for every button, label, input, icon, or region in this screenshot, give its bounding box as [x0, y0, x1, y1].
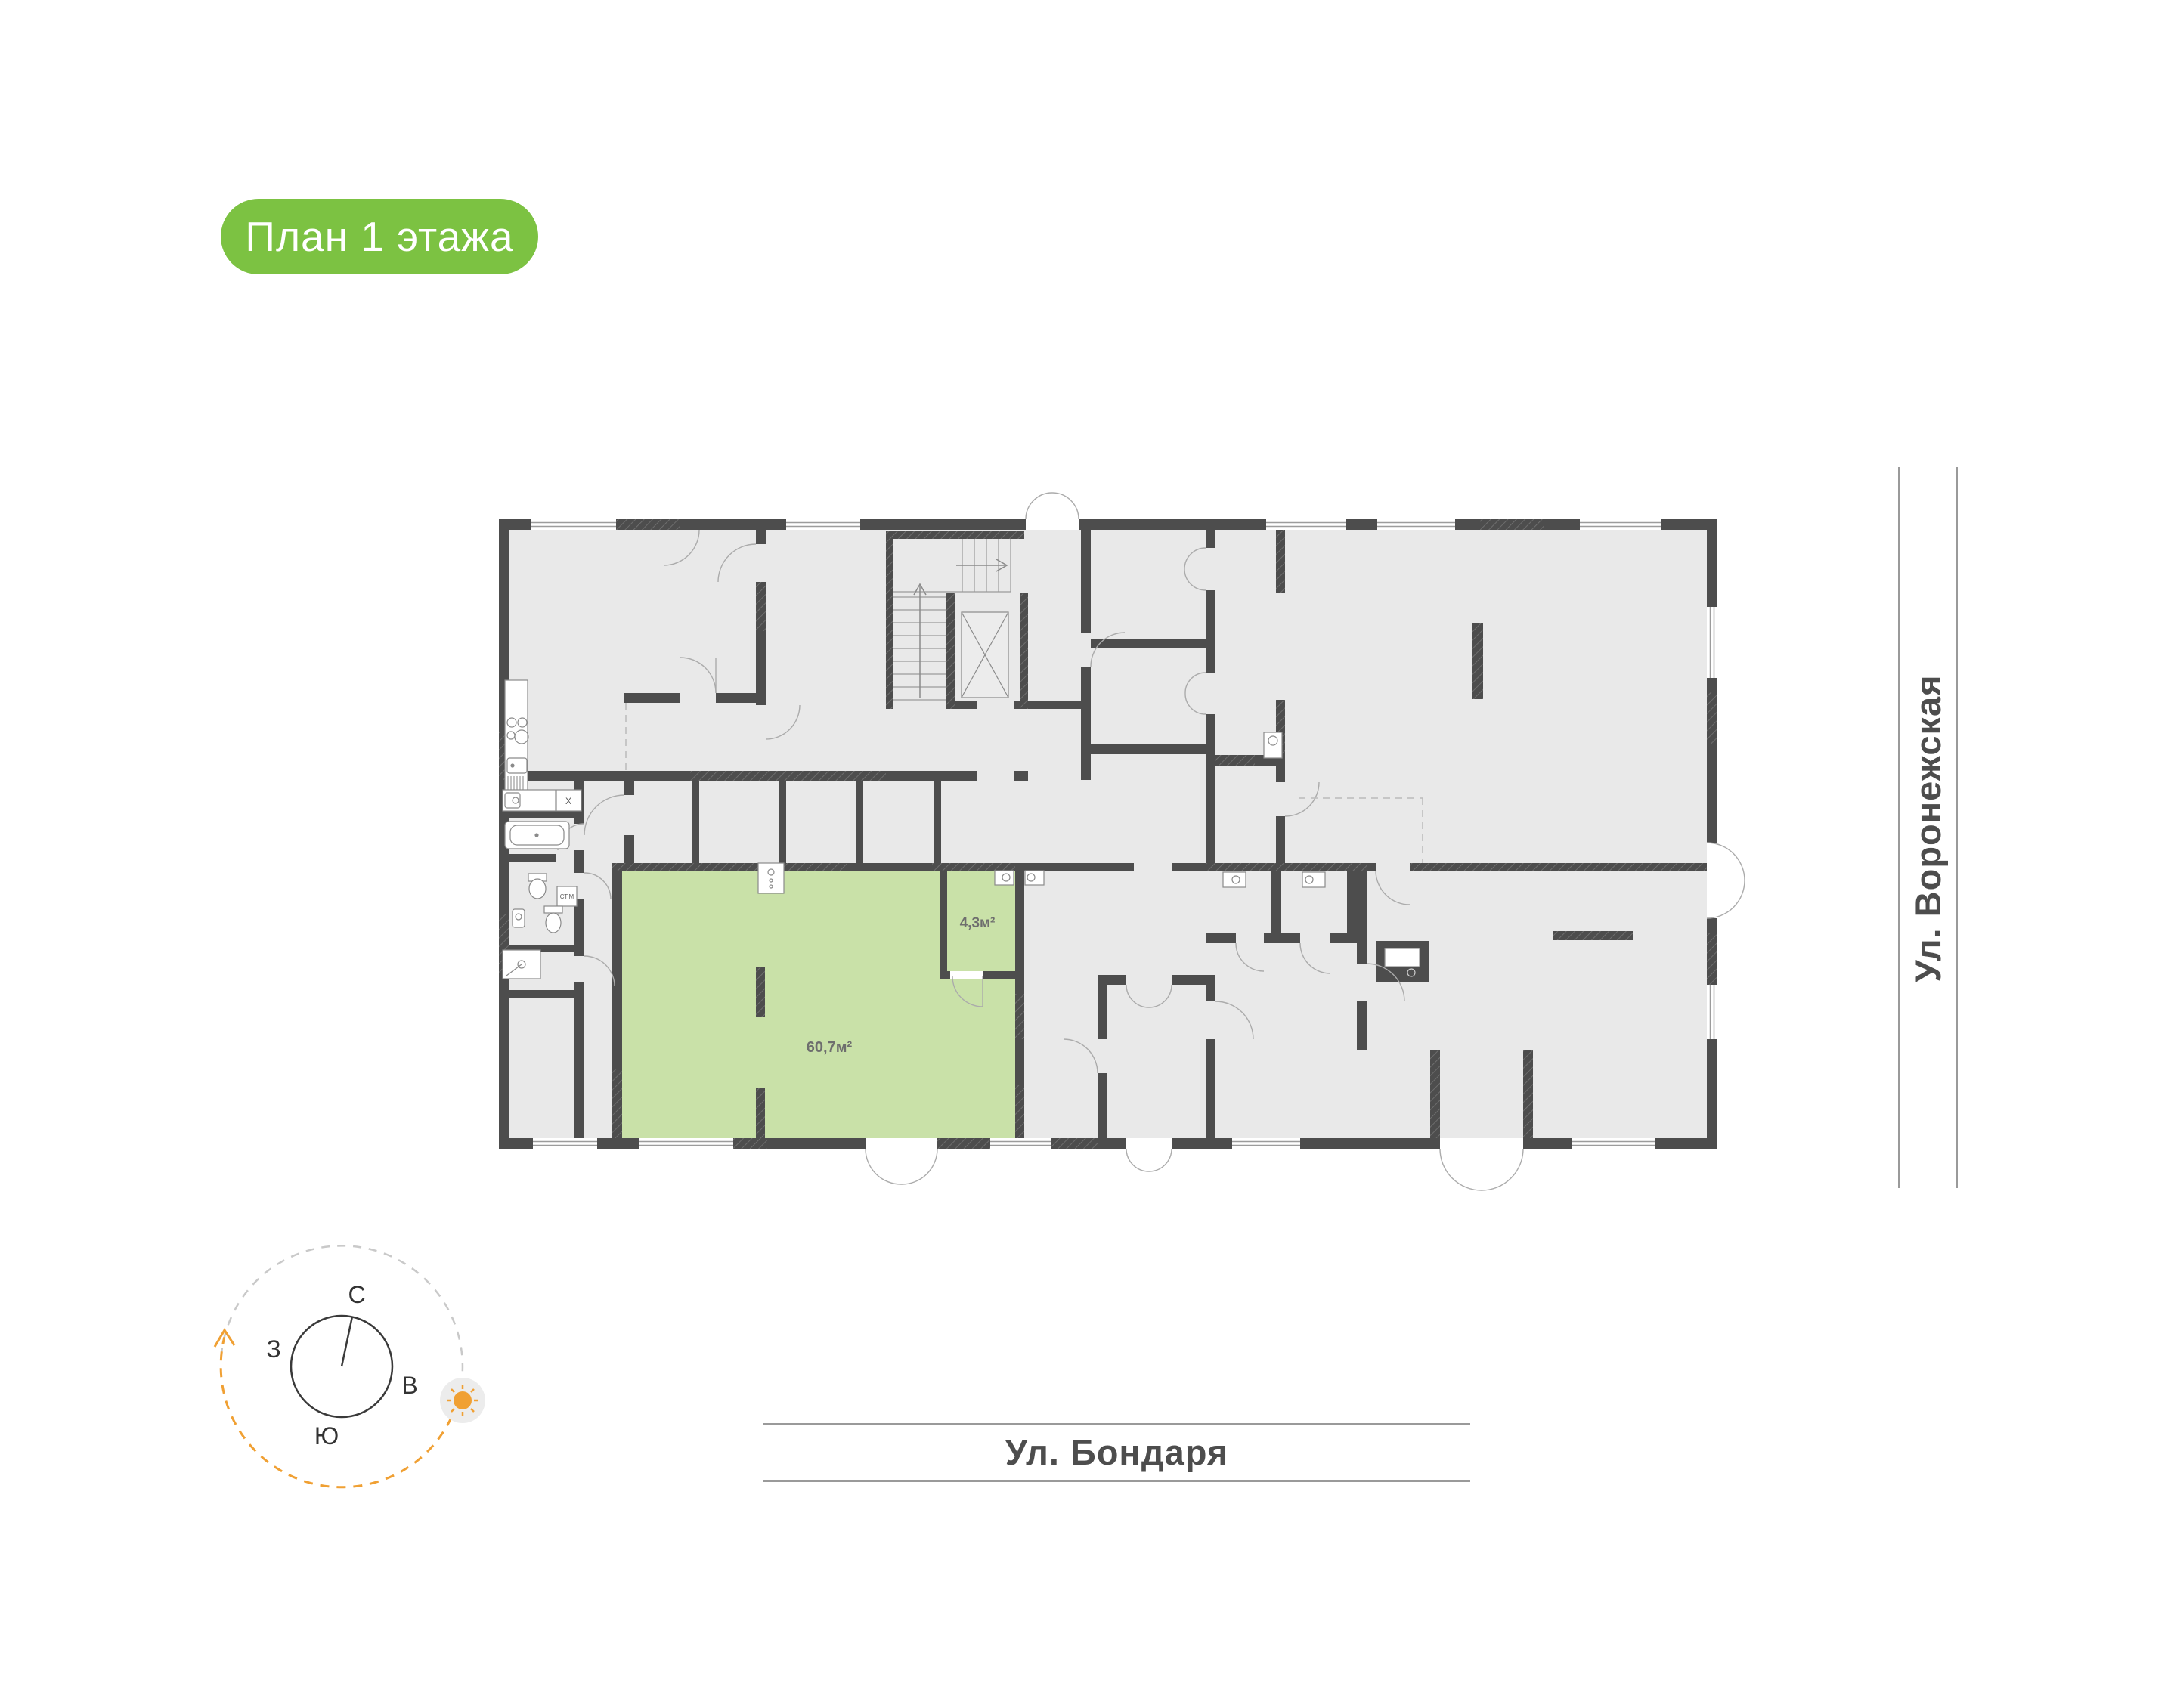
bathtub-icon: [505, 822, 569, 849]
washing-machine-label: СТ.М: [560, 893, 574, 900]
shower-icon: [503, 950, 540, 979]
street-bottom-line-top: [763, 1423, 1470, 1425]
badge-label: План 1 этажа: [245, 212, 513, 261]
compass-west: З: [266, 1335, 280, 1363]
street-bottom-line-bottom: [763, 1480, 1470, 1482]
page: План 1 этажа: [0, 0, 2177, 1708]
street-name-bottom: Ул. Бондаря: [763, 1432, 1470, 1471]
annex-sink-icon-2: [1025, 871, 1044, 885]
compass-north: С: [348, 1281, 365, 1308]
sun-icon: [440, 1378, 485, 1423]
small-sink-icon: [505, 793, 520, 808]
elevator: [962, 612, 1008, 698]
unit-area-label: 60,7м²: [807, 1039, 853, 1056]
annex-area-label: 4,3м²: [960, 915, 996, 931]
compass-east: В: [401, 1372, 417, 1399]
basin-icon: [513, 909, 525, 927]
street-right-line-outer: [1898, 467, 1900, 1188]
highlight-room[interactable]: [622, 871, 1015, 1138]
compass-south: Ю: [314, 1422, 339, 1450]
toilet-icon-2: [544, 906, 562, 933]
toilet-icon: [528, 874, 547, 899]
wc-sink-icon: [1223, 872, 1246, 887]
compass: С З В Ю: [212, 1224, 514, 1527]
shaft-box: [758, 863, 784, 893]
floor-plan: 60,7м² 4,3м² СТ.М X: [484, 453, 1769, 1239]
wc-sink-icon-2: [1302, 872, 1325, 887]
kitchen-sink-icon: [507, 758, 527, 773]
appliance-label: X: [565, 796, 571, 806]
street-name-right: Ул. Воронежская: [1909, 466, 1946, 1191]
street-right-line-inner: [1956, 467, 1958, 1188]
annex-sink-icon: [995, 871, 1014, 885]
wc-toilet-icon: [1264, 732, 1282, 758]
floor-plan-badge: План 1 этажа: [221, 199, 538, 274]
